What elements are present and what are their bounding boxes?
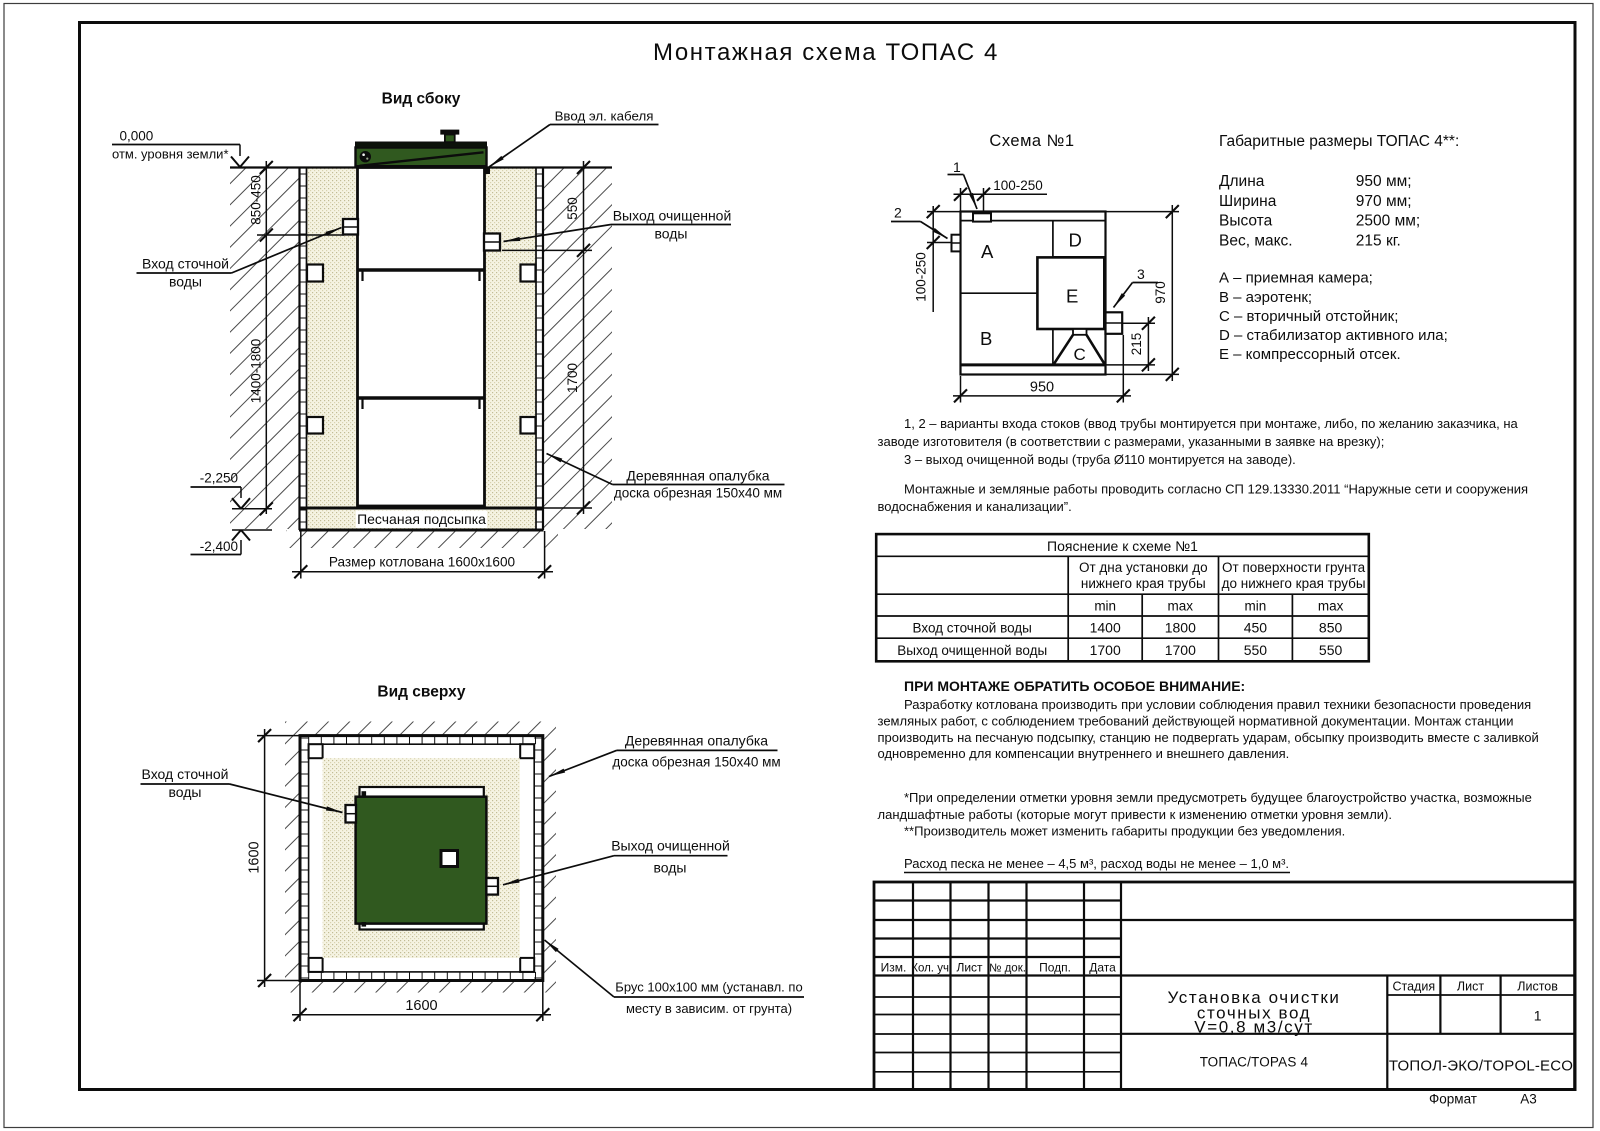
svg-text:Пояснение к схеме №1: Пояснение к схеме №1	[1047, 538, 1198, 554]
svg-text:1: 1	[953, 159, 961, 175]
svg-text:А3: А3	[1520, 1092, 1537, 1107]
svg-text:550: 550	[1319, 642, 1343, 658]
svg-text:Расход песка не менее – 4,5 м³: Расход песка не менее – 4,5 м³, расход в…	[904, 856, 1289, 871]
svg-text:950 мм;: 950 мм;	[1356, 173, 1412, 190]
svg-text:Стадия: Стадия	[1392, 980, 1435, 994]
svg-text:Ширина: Ширина	[1219, 193, 1277, 210]
svg-text:Вид сбоку: Вид сбоку	[382, 91, 461, 108]
svg-text:А – приемная камера;: А – приемная камера;	[1219, 270, 1373, 287]
svg-text:заводе изготовителя (в соответ: заводе изготовителя (в соответствии с ра…	[878, 434, 1385, 449]
svg-text:970 мм;: 970 мм;	[1356, 193, 1412, 210]
svg-text:215: 215	[1129, 333, 1144, 356]
svg-text:до нижнего края трубы: до нижнего края трубы	[1222, 576, 1366, 591]
svg-text:100-250: 100-250	[914, 252, 929, 302]
svg-text:1800: 1800	[1165, 620, 1196, 636]
svg-text:производить на песчаную подсып: производить на песчаную подсыпку, станци…	[878, 730, 1539, 745]
svg-text:2: 2	[894, 205, 902, 221]
svg-text:Вход сточной воды: Вход сточной воды	[913, 621, 1032, 636]
svg-text:min: min	[1094, 599, 1116, 614]
svg-text:воды: воды	[169, 784, 202, 800]
svg-text:Листов: Листов	[1517, 980, 1558, 994]
svg-text:B: B	[980, 328, 992, 349]
svg-text:земляных работ, с соблюдением: земляных работ, с соблюдением требований…	[878, 714, 1514, 729]
svg-text:воды: воды	[169, 274, 202, 290]
svg-text:E: E	[1066, 286, 1078, 307]
svg-text:Деревянная опалубка: Деревянная опалубка	[626, 468, 769, 484]
svg-text:Лист: Лист	[956, 961, 983, 975]
svg-text:A: A	[981, 241, 994, 262]
svg-text:C: C	[1074, 345, 1086, 364]
svg-text:отм. уровня земли*: отм. уровня земли*	[112, 147, 229, 162]
svg-text:От дна установки до: От дна установки до	[1079, 560, 1208, 575]
svg-text:Монтажная схема ТОПАС 4: Монтажная схема ТОПАС 4	[653, 39, 999, 66]
svg-text:ландшафтные работы (которые мо: ландшафтные работы (которые могут привес…	[878, 807, 1392, 822]
svg-text:850: 850	[1319, 620, 1343, 636]
svg-text:Изм.: Изм.	[881, 961, 907, 975]
svg-text:Схема №1: Схема №1	[989, 132, 1074, 150]
svg-text:100-250: 100-250	[993, 178, 1043, 193]
svg-text:950: 950	[1030, 380, 1054, 396]
svg-text:От поверхности грунта: От поверхности грунта	[1222, 560, 1366, 575]
svg-text:Длина: Длина	[1219, 173, 1265, 190]
svg-text:1700: 1700	[1165, 642, 1196, 658]
svg-text:доска обрезная 150х40 мм: доска обрезная 150х40 мм	[612, 755, 780, 770]
svg-text:1, 2 – варианты входа стоков: 1, 2 – варианты входа стоков (ввод трубы…	[904, 416, 1519, 431]
svg-text:ТОПАС/TOPAS 4: ТОПАС/TOPAS 4	[1200, 1055, 1309, 1070]
svg-text:Дата: Дата	[1089, 961, 1116, 975]
svg-text:-2,250: -2,250	[200, 471, 238, 486]
svg-text:D: D	[1069, 230, 1082, 251]
svg-text:Выход очищенной: Выход очищенной	[613, 208, 732, 224]
svg-text:215 кг.: 215 кг.	[1356, 233, 1401, 250]
svg-text:Кол. уч.: Кол. уч.	[911, 963, 952, 975]
svg-text:доска обрезная 150х40 мм: доска обрезная 150х40 мм	[614, 486, 782, 501]
svg-text:3 – выход очищенной воды (труб: 3 – выход очищенной воды (труба Ø110 мон…	[904, 452, 1296, 467]
svg-text:Выход очищенной: Выход очищенной	[611, 838, 730, 854]
svg-text:Ввод эл. кабеля: Ввод эл. кабеля	[555, 109, 654, 124]
svg-text:max: max	[1168, 599, 1194, 614]
svg-text:V=0,8 м3/сут: V=0,8 м3/сут	[1194, 1018, 1313, 1037]
svg-text:Выход очищенной воды: Выход очищенной воды	[897, 643, 1047, 658]
svg-text:2500 мм;: 2500 мм;	[1356, 213, 1420, 230]
svg-text:Е – компрессорный отсек.: Е – компрессорный отсек.	[1219, 346, 1401, 363]
svg-text:0,000: 0,000	[120, 129, 154, 144]
svg-text:1600: 1600	[247, 841, 263, 873]
svg-text:Подп.: Подп.	[1039, 961, 1071, 975]
svg-text:Вес, макс.: Вес, макс.	[1219, 233, 1293, 250]
svg-text:№ док.: № док.	[989, 963, 1026, 975]
svg-text:воды: воды	[654, 860, 687, 876]
svg-text:Песчаная подсыпка: Песчаная подсыпка	[357, 511, 486, 527]
svg-text:Вход сточной: Вход сточной	[142, 256, 229, 272]
svg-text:В – аэротенк;: В – аэротенк;	[1219, 289, 1312, 306]
svg-text:месту в зависим. от грунта): месту в зависим. от грунта)	[626, 1001, 792, 1016]
svg-text:Лист: Лист	[1457, 980, 1484, 994]
svg-text:-2,400: -2,400	[200, 539, 238, 554]
svg-text:воды: воды	[655, 226, 688, 242]
svg-text:min: min	[1245, 599, 1267, 614]
svg-text:Брус 100х100 мм (устанавл. по: Брус 100х100 мм (устанавл. по	[615, 980, 802, 995]
svg-text:1600: 1600	[405, 998, 437, 1014]
svg-text:970: 970	[1153, 281, 1168, 304]
svg-text:1700: 1700	[1090, 642, 1121, 658]
svg-text:1400-1800: 1400-1800	[249, 339, 264, 404]
svg-text:1: 1	[1534, 1008, 1542, 1024]
svg-text:Габаритные размеры ТОПАС 4**:: Габаритные размеры ТОПАС 4**:	[1219, 133, 1459, 150]
svg-text:ТОПОЛ-ЭКО/TOPOL-ECO: ТОПОЛ-ЭКО/TOPOL-ECO	[1389, 1058, 1573, 1075]
svg-text:Вид сверху: Вид сверху	[377, 684, 466, 701]
svg-text:Деревянная опалубка: Деревянная опалубка	[625, 733, 768, 749]
svg-text:Вход сточной: Вход сточной	[142, 766, 229, 782]
svg-text:нижнего края трубы: нижнего края трубы	[1081, 576, 1206, 591]
svg-text:Формат: Формат	[1429, 1092, 1477, 1107]
svg-text:С – вторичный отстойник;: С – вторичный отстойник;	[1219, 308, 1398, 325]
svg-text:**Производитель может изменить: **Производитель может изменить габариты …	[904, 824, 1345, 839]
svg-text:*При определении отметки уровн: *При определении отметки уровня земли пр…	[904, 790, 1532, 805]
svg-text:D – стабилизатор активного ила: D – стабилизатор активного ила;	[1219, 327, 1448, 344]
svg-text:max: max	[1318, 599, 1344, 614]
svg-text:водоснабжения и канализации”.: водоснабжения и канализации”.	[878, 499, 1072, 514]
svg-text:3: 3	[1137, 266, 1145, 282]
svg-text:1700: 1700	[565, 363, 580, 393]
svg-text:Монтажные и земляные работы пр: Монтажные и земляные работы проводить со…	[904, 482, 1528, 497]
svg-text:450: 450	[1244, 620, 1268, 636]
svg-text:Высота: Высота	[1219, 213, 1273, 230]
svg-text:550: 550	[565, 197, 580, 220]
svg-text:ПРИ МОНТАЖЕ ОБРАТИТЬ ОСОБОЕ ВН: ПРИ МОНТАЖЕ ОБРАТИТЬ ОСОБОЕ ВНИМАНИЕ:	[904, 678, 1245, 694]
svg-text:Разработку котлована производи: Разработку котлована производить при усл…	[904, 697, 1531, 712]
svg-text:850-450: 850-450	[249, 175, 264, 225]
svg-text:550: 550	[1244, 642, 1268, 658]
svg-text:Размер котлована 1600х1600: Размер котлована 1600х1600	[329, 555, 516, 570]
svg-text:1400: 1400	[1090, 620, 1121, 636]
svg-text:одновременно для компенсации в: одновременно для компенсации внутреннего…	[878, 746, 1290, 761]
